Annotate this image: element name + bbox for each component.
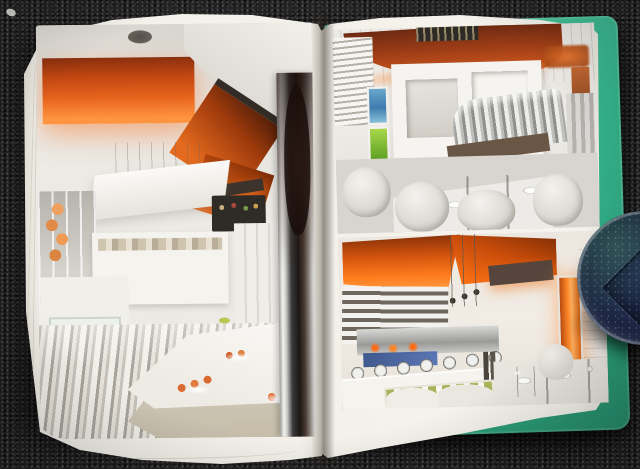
blue-art-panel (367, 86, 389, 125)
right-page-content (332, 19, 609, 412)
photo-scene (0, 0, 640, 469)
left-page-photo (36, 23, 316, 440)
page-edge-line (56, 446, 300, 461)
orange-glow-panel (545, 45, 590, 68)
molded-chair (457, 189, 516, 233)
bar-stools (566, 93, 596, 158)
pendant-lights (446, 234, 482, 307)
right-top-photo (332, 23, 600, 234)
citrus-fruit-stack (44, 201, 73, 263)
book-spine-gutter (311, 14, 335, 462)
orange-light-panel (42, 57, 195, 125)
white-chair-back (436, 384, 495, 408)
carpet-lint-speck (5, 7, 17, 17)
molded-chair (394, 181, 449, 232)
molded-chair (532, 173, 583, 226)
bottle-shelf (416, 26, 478, 42)
white-chair-back (386, 387, 439, 408)
lime-garnish (219, 317, 230, 323)
frame-opening (406, 79, 460, 138)
food-trays (98, 238, 222, 251)
molded-chair (342, 166, 391, 217)
